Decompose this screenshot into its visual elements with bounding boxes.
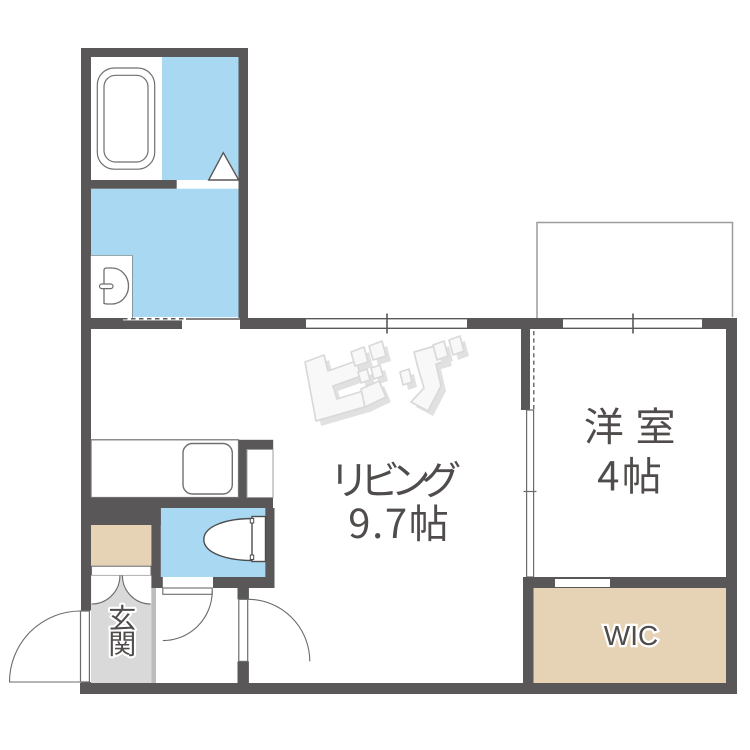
svg-text:WIC: WIC — [604, 620, 658, 651]
